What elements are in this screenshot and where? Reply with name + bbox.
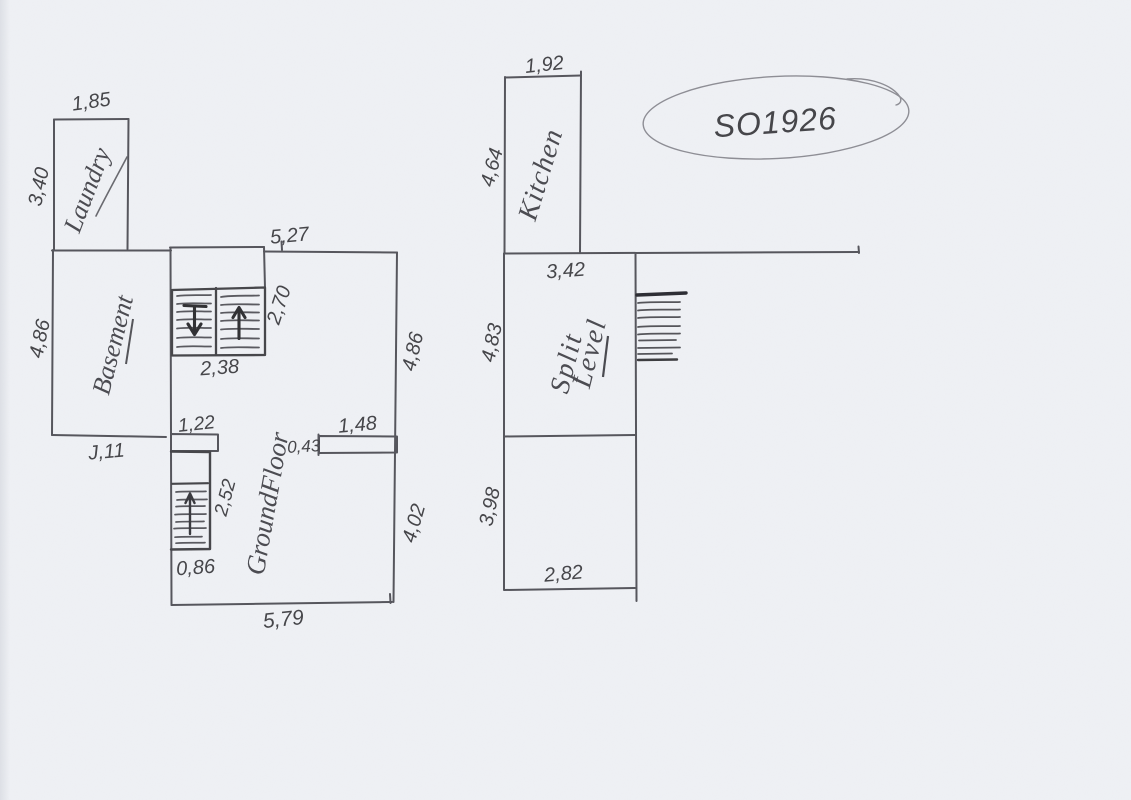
svg-text:1,92: 1,92: [524, 52, 565, 78]
svg-text:J,11: J,11: [86, 439, 125, 464]
svg-text:1,22: 1,22: [177, 412, 216, 437]
svg-text:2,38: 2,38: [198, 356, 239, 381]
svg-text:5,79: 5,79: [262, 606, 305, 633]
svg-text:1,48: 1,48: [337, 412, 378, 437]
svg-text:0,86: 0,86: [175, 556, 216, 581]
svg-text:3,42: 3,42: [545, 259, 585, 284]
svg-text:5,27: 5,27: [269, 223, 311, 248]
svg-text:2,82: 2,82: [542, 561, 584, 586]
